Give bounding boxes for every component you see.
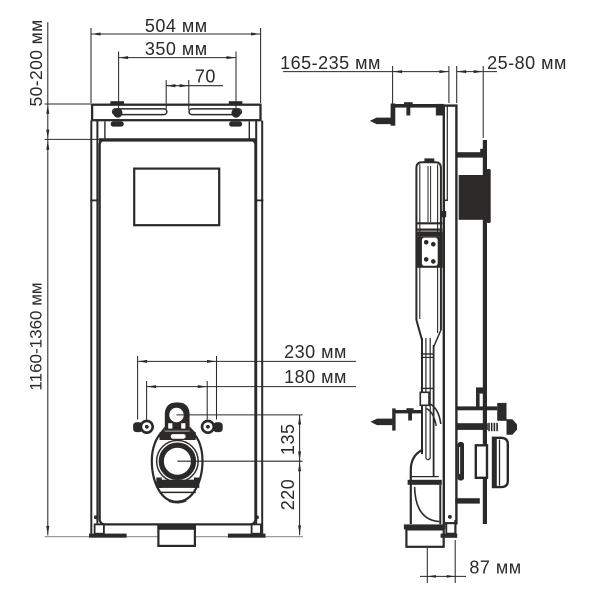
svg-text:504 мм: 504 мм (145, 16, 208, 36)
svg-text:1160-1360 мм: 1160-1360 мм (27, 282, 46, 390)
svg-text:350 мм: 350 мм (145, 39, 208, 59)
svg-text:25-80 мм: 25-80 мм (487, 53, 567, 73)
svg-text:135: 135 (278, 424, 298, 456)
svg-text:70: 70 (195, 67, 216, 87)
svg-text:87 мм: 87 мм (469, 558, 521, 578)
svg-text:50-200 мм: 50-200 мм (26, 19, 46, 106)
svg-text:180 мм: 180 мм (284, 367, 347, 387)
svg-text:220: 220 (278, 479, 298, 511)
svg-text:165-235 мм: 165-235 мм (280, 53, 381, 73)
svg-text:230 мм: 230 мм (284, 342, 347, 362)
